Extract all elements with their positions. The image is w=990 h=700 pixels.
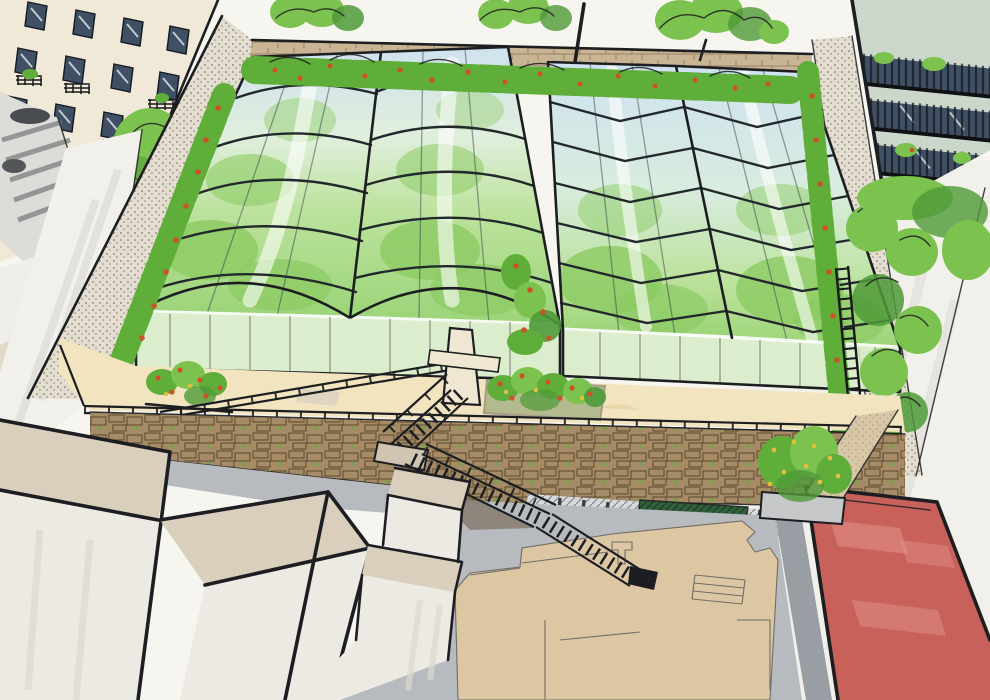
sketch-svg <box>0 0 990 700</box>
architectural-sketch <box>0 0 990 700</box>
